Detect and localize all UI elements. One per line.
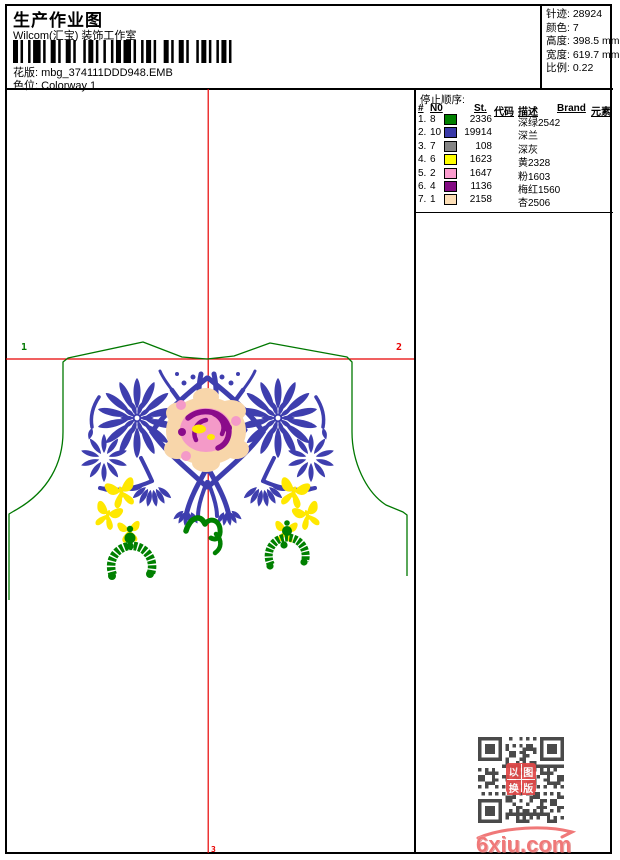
- color-swatch: [444, 154, 457, 165]
- watermark-text: 6xiu.com: [476, 832, 571, 858]
- stamp-char: 版: [522, 780, 536, 795]
- col-order: #: [418, 103, 424, 114]
- row-stitches: 108: [458, 141, 492, 152]
- color-swatch: [444, 141, 457, 152]
- row-stitches: 1647: [458, 168, 492, 179]
- red-stamp: 以 图 换 版: [506, 763, 536, 793]
- col-brand: Brand: [557, 103, 586, 114]
- row-needle: 1: [430, 194, 436, 205]
- row-needle: 10: [430, 127, 441, 138]
- row-order: 3.: [418, 141, 426, 152]
- row-needle: 2: [430, 168, 436, 179]
- stamp-char: 换: [507, 780, 521, 795]
- row-needle: 6: [430, 154, 436, 165]
- site-watermark: 6xiu.com: [474, 824, 578, 856]
- row-stitches: 1136: [458, 181, 492, 192]
- row-description: 杏2506: [518, 194, 550, 209]
- marker-end: 2: [396, 342, 402, 353]
- row-stitches: 1623: [458, 154, 492, 165]
- header-separator: [5, 88, 613, 90]
- color-swatch: [444, 127, 457, 138]
- row-stitches: 2336: [458, 114, 492, 125]
- row-order: 5.: [418, 168, 426, 179]
- stamp-char: 图: [522, 764, 536, 779]
- color-swatch: [444, 181, 457, 192]
- marker-bottom: 3: [211, 845, 216, 854]
- production-worksheet: 生产作业图 Wilcom(汇宝) 装饰工作室 花版: mbg_374111DDD…: [0, 0, 620, 860]
- row-needle: 4: [430, 181, 436, 192]
- row-order: 7.: [418, 194, 426, 205]
- panel-divider: [414, 88, 416, 854]
- infobox-divider: [540, 4, 542, 89]
- row-order: 6.: [418, 181, 426, 192]
- color-swatch: [444, 194, 457, 205]
- table-bottom-line: [414, 212, 613, 213]
- row-stitches: 2158: [458, 194, 492, 205]
- marker-start: 1: [21, 342, 27, 353]
- row-needle: 7: [430, 141, 436, 152]
- color-swatch: [444, 168, 457, 179]
- row-order: 2.: [418, 127, 426, 138]
- col-code: 代码: [494, 103, 514, 118]
- col-stitches: St.: [474, 103, 487, 114]
- row-order: 1.: [418, 114, 426, 125]
- color-swatch: [444, 114, 457, 125]
- col-needle: N0: [430, 103, 443, 114]
- row-stitches: 19914: [458, 127, 492, 138]
- stamp-char: 以: [507, 764, 521, 779]
- row-order: 4.: [418, 154, 426, 165]
- col-element: 元素: [591, 103, 611, 118]
- row-needle: 8: [430, 114, 436, 125]
